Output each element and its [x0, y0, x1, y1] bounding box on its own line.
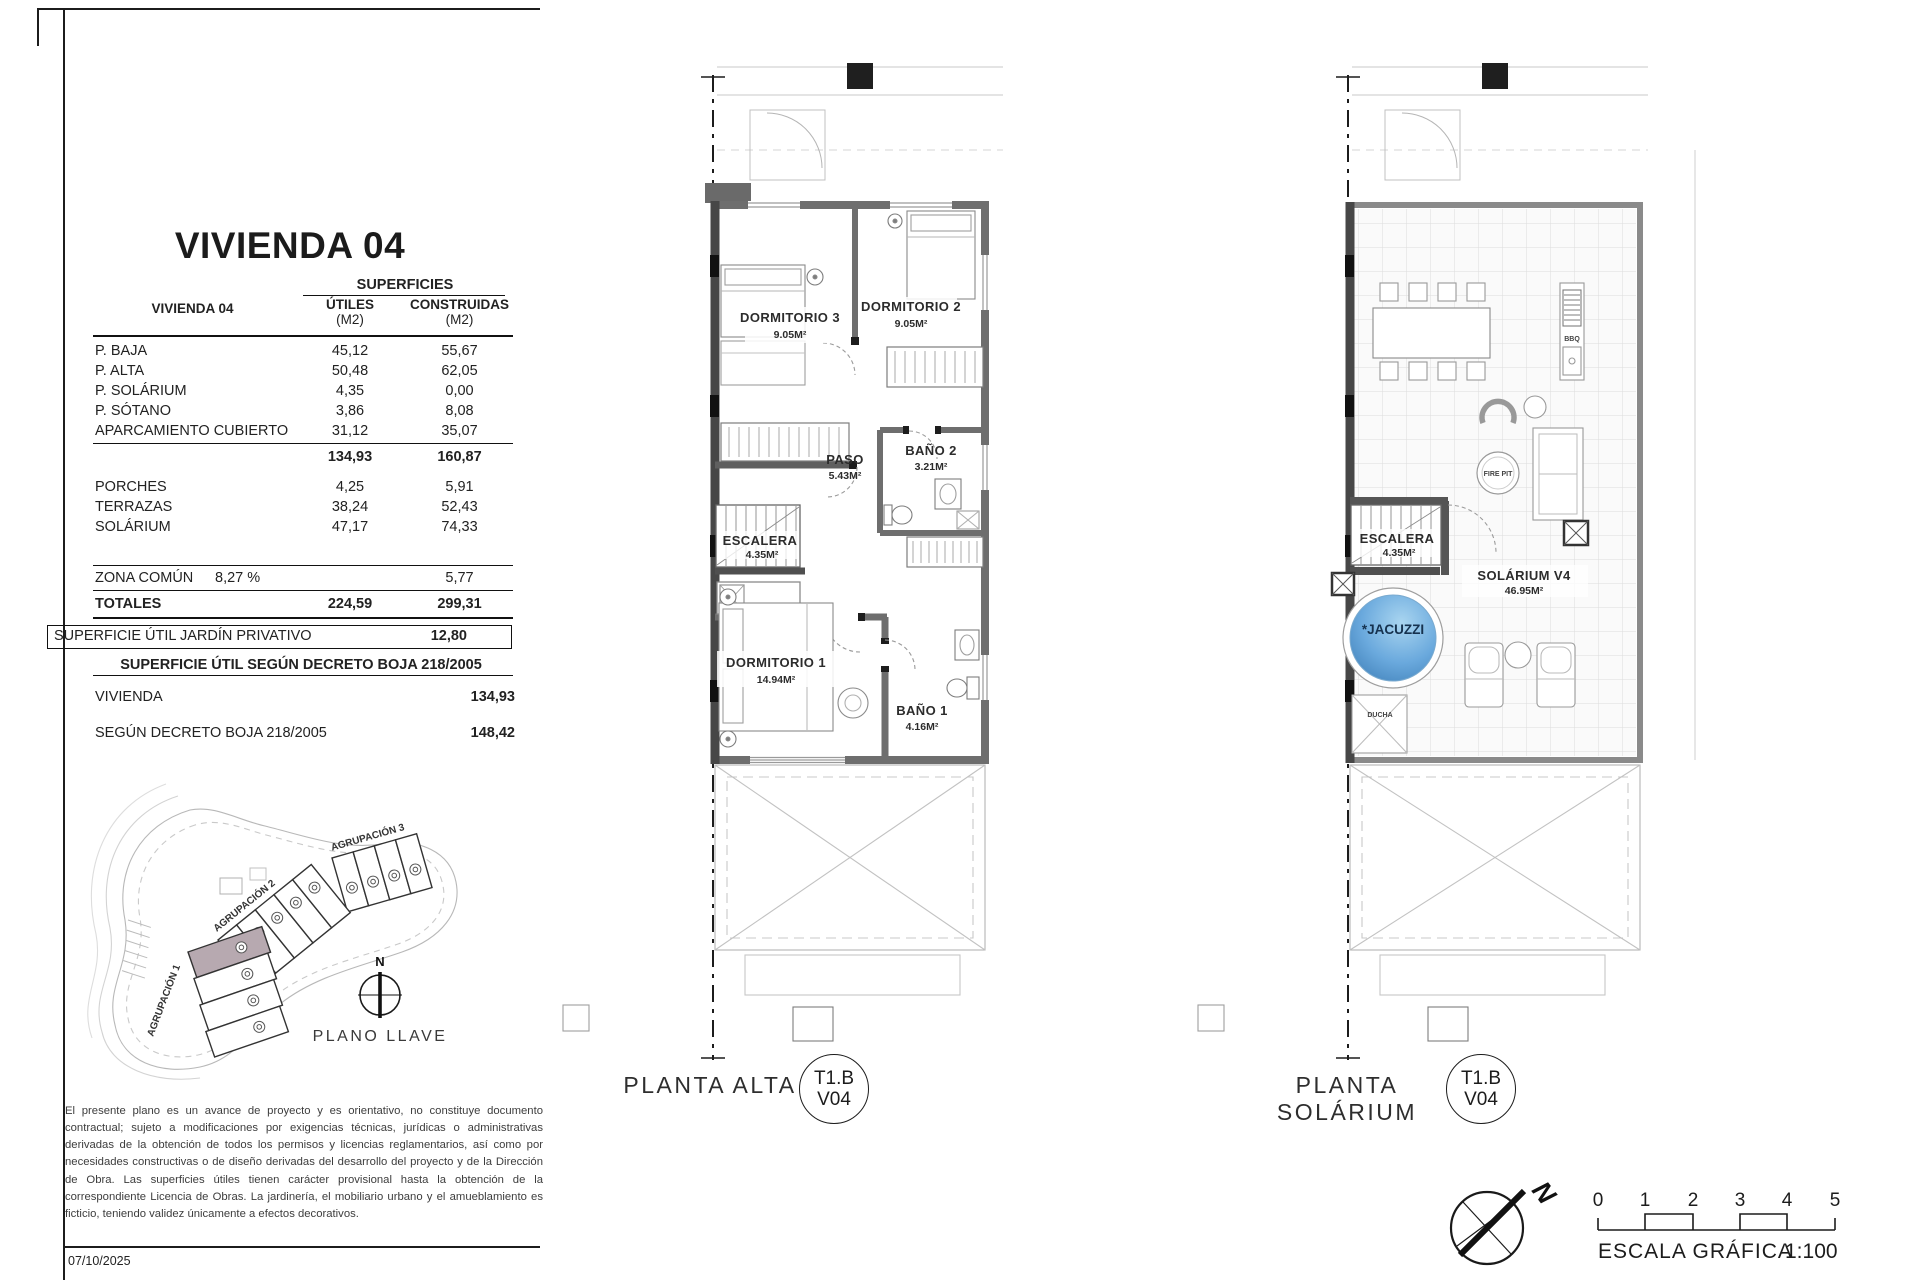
footer-scale-group: N 0 1 2 3 4 5 ESCALA GRÁFICA 1:100 [1430, 1150, 1890, 1280]
room-label: BAÑO 1 [896, 703, 948, 718]
svg-text:4: 4 [1782, 1190, 1793, 1211]
border-top-line [37, 8, 540, 10]
header-rule [93, 335, 513, 337]
border-corner-stub [37, 8, 39, 46]
zona-comun-rule-top [93, 565, 513, 566]
col-construidas: CONSTRUIDAS(M2) [407, 297, 512, 327]
subtotal-row: 134,93 160,87 [85, 449, 517, 469]
room-label: DORMITORIO 1 [726, 655, 826, 670]
room-label: DORMITORIO 2 [861, 299, 961, 314]
plan-alta-caption: PLANTA ALTA [600, 1072, 820, 1099]
chimney-block [847, 63, 873, 89]
svg-text:5: 5 [1830, 1190, 1841, 1211]
svg-text:0: 0 [1593, 1190, 1604, 1211]
decreto-header: SUPERFICIE ÚTIL SEGÚN DECRETO BOJA 218/2… [85, 657, 517, 673]
superficies-underline [303, 295, 505, 296]
table-row: P. SÓTANO 3,86 8,08 [85, 403, 517, 423]
room-area: 5.43M² [829, 470, 862, 482]
room-area: 46.95M² [1505, 585, 1544, 597]
agrupacion-1-label: AGRUPACIÓN 1 [144, 962, 184, 1038]
table-row: TERRAZAS 38,24 52,43 [85, 499, 517, 519]
chimney-block [1482, 63, 1508, 89]
totales-rule [93, 617, 513, 619]
jacuzzi-label-line1: *JACUZZI [1362, 622, 1424, 637]
decreto-underline [93, 675, 513, 676]
floor-plan-planta-solarium: BBQ FIRE PIT *JACUZZI DUCHA [1190, 55, 1700, 1065]
lower-terrace-roof [563, 765, 985, 1041]
room-area: 4.16M² [906, 721, 939, 733]
svg-text:3: 3 [1735, 1190, 1746, 1211]
room-area: 4.35M² [1383, 547, 1416, 559]
svg-text:1: 1 [1640, 1190, 1651, 1211]
north-compass: N [1451, 1176, 1562, 1264]
room-label: DORMITORIO 3 [740, 310, 840, 325]
room-area: 14.94M² [757, 674, 796, 686]
scale-caption: ESCALA GRÁFICA [1598, 1240, 1793, 1263]
table-row: APARCAMIENTO CUBIERTO 31,12 35,07 [85, 423, 517, 443]
roof-lines-top [1352, 63, 1648, 180]
zona-comun-row: ZONA COMÚN 8,27 % 5,77 [85, 570, 517, 590]
table-row: SOLÁRIUM 47,17 74,33 [85, 519, 517, 539]
bathroom2-fixtures [884, 479, 979, 529]
plan-sheet: VIVIENDA 04 SUPERFICIES VIVIENDA 04 ÚTIL… [0, 0, 1920, 1280]
key-plan: AGRUPACIÓN 3 AGRUPACIÓN 2 AGRUPACIÓN 1 [70, 770, 510, 1080]
room-area: 9.05M² [774, 329, 807, 341]
plan-alta-badge: T1.B V04 [799, 1054, 869, 1124]
lower-terrace-roof [1198, 765, 1640, 1041]
room-area: 4.35M² [746, 549, 779, 561]
room-area: 9.05M² [895, 318, 928, 330]
room-area: 3.21M² [915, 461, 948, 473]
agrupacion-3-units: AGRUPACIÓN 3 [327, 817, 432, 911]
bbq-label: BBQ [1564, 336, 1580, 343]
key-plan-caption: PLANO LLAVE [313, 1028, 448, 1045]
room-label: ESCALERA [723, 533, 798, 548]
room-label: SOLÁRIUM V4 [1477, 568, 1571, 583]
room-label: ESCALERA [1360, 531, 1435, 546]
bbq-counter: BBQ [1560, 283, 1584, 380]
totales-row: TOTALES 224,59 299,31 [85, 596, 517, 616]
page-title: VIVIENDA 04 [85, 225, 495, 267]
jacuzzi: *JACUZZI [1343, 588, 1443, 688]
north-label: N [375, 954, 384, 969]
plan-solarium-badge: T1.B V04 [1446, 1054, 1516, 1124]
table-row: PORCHES 4,25 5,91 [85, 479, 517, 499]
graphic-scale-bar [1598, 1214, 1835, 1230]
disclaimer-text: El presente plano es un avance de proyec… [65, 1103, 543, 1223]
roof-lines-top [705, 63, 1003, 203]
table-row: P. SOLÁRIUM 4,35 0,00 [85, 383, 517, 403]
room-label: BAÑO 2 [905, 443, 957, 458]
bathroom1-fixtures [947, 630, 979, 699]
plan-solarium-caption: PLANTA SOLÁRIUM [1227, 1072, 1467, 1126]
superficies-header: SUPERFICIES [300, 277, 510, 293]
date-stamp: 07/10/2025 [68, 1254, 131, 1268]
svg-text:2: 2 [1688, 1190, 1699, 1211]
scale-tick-labels: 0 1 2 3 4 5 [1593, 1190, 1841, 1211]
table-row: P. ALTA 50,48 62,05 [85, 363, 517, 383]
row-header: VIVIENDA 04 [85, 301, 300, 316]
col-utiles: ÚTILES(M2) [300, 297, 400, 327]
border-bottom-line [63, 1246, 540, 1248]
subtotal-rule [93, 443, 513, 444]
ducha-label: DUCHA [1367, 712, 1392, 719]
table-row: P. BAJA 45,12 55,67 [85, 343, 517, 363]
jardin-privativo-box: SUPERFICIE ÚTIL JARDÍN PRIVATIVO 12,80 [47, 625, 512, 649]
floor-plan-planta-alta: DORMITORIO 3 9.05M² DORMITORIO 2 9.05M² … [555, 55, 1055, 1065]
room-label: PASO [826, 452, 863, 467]
zona-comun-rule-bottom [93, 590, 513, 591]
fire-pit-label: FIRE PIT [1484, 471, 1514, 478]
scale-ratio: 1:100 [1785, 1240, 1838, 1263]
bedroom2-furniture [888, 211, 975, 299]
shower-area: DUCHA [1352, 695, 1407, 753]
north-label: N [1526, 1176, 1562, 1210]
